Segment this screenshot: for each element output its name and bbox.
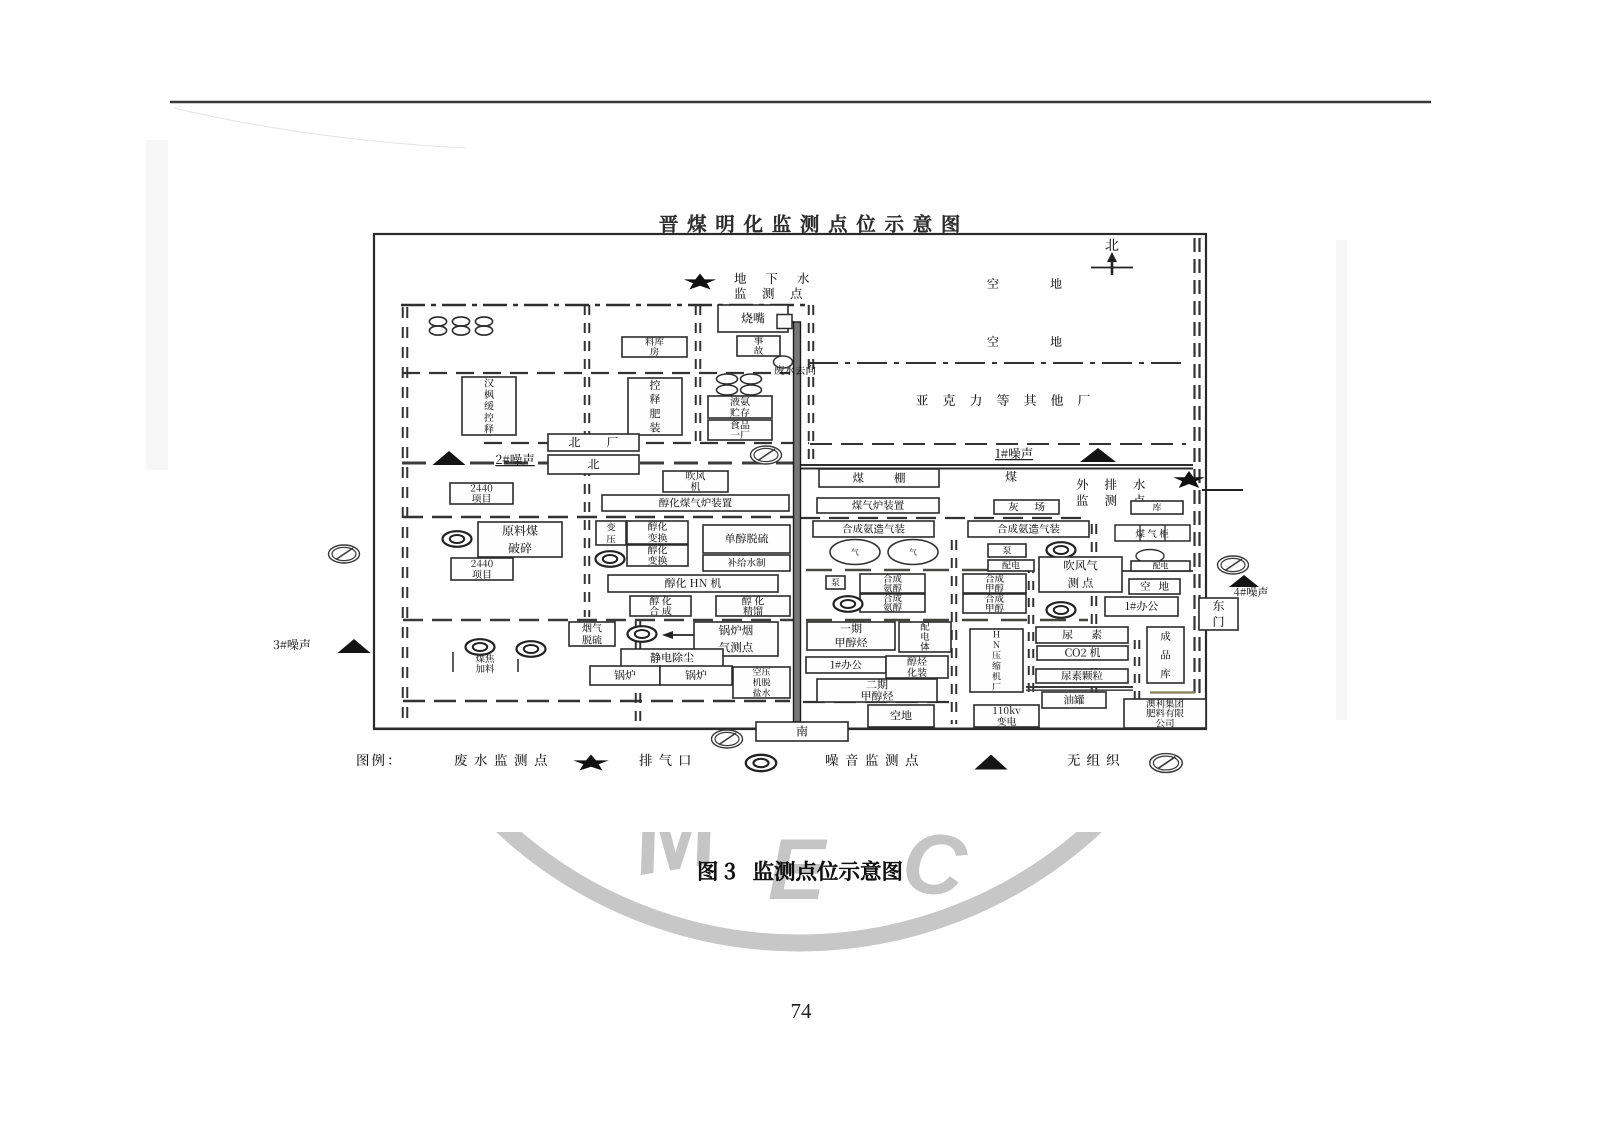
svg-text:气测点: 气测点 [719,639,754,655]
svg-text:释: 释 [484,421,494,436]
svg-text:补给水制: 补给水制 [727,555,766,569]
svg-text:精馏: 精馏 [743,602,763,617]
svg-text:北: 北 [587,456,599,473]
svg-text:泵: 泵 [831,576,840,589]
svg-text:项目: 项目 [472,490,492,505]
svg-text:2#噪声: 2#噪声 [495,450,534,468]
svg-text:氨醇: 氨醇 [883,600,903,614]
svg-text:吹风气: 吹风气 [1063,558,1098,574]
svg-text:油罐: 油罐 [1064,693,1086,708]
svg-text:东: 东 [1212,597,1224,614]
svg-text:脱硫: 脱硫 [582,631,602,646]
svg-text:压: 压 [606,531,616,545]
svg-text:废水监测点: 废水监测点 [454,749,554,769]
svg-text:厂: 厂 [992,680,1001,693]
svg-text:4#噪声: 4#噪声 [1234,584,1269,600]
svg-text:排气口: 排气口 [639,749,698,769]
svg-text:公司: 公司 [1155,715,1174,729]
svg-text:配电: 配电 [1153,561,1169,572]
svg-text:故: 故 [754,343,764,357]
svg-text:无组织: 无组织 [1067,749,1126,769]
svg-text:合成氨造气装: 合成氨造气装 [842,522,905,537]
svg-text:静电除尘: 静电除尘 [650,650,694,666]
svg-text:1#噪声: 1#噪声 [995,444,1033,462]
svg-text:南: 南 [796,723,808,740]
svg-text:房: 房 [650,344,660,358]
svg-text:库: 库 [1160,666,1171,681]
svg-text:空地: 空地 [890,708,912,724]
svg-text:原料煤: 原料煤 [502,522,538,539]
svg-text:锅炉: 锅炉 [685,667,707,683]
svg-text:空: 空 [987,333,999,350]
svg-text:图例：: 图例： [356,749,403,769]
svg-text:晋煤明化监测点位示意图: 晋煤明化监测点位示意图 [659,209,969,237]
svg-text:1#办公: 1#办公 [1125,598,1159,614]
svg-text:醇化 HN 机: 醇化 HN 机 [665,575,722,591]
svg-text:装: 装 [650,420,661,436]
svg-text:噪音监测点: 噪音监测点 [825,749,925,769]
svg-text:机: 机 [691,478,701,493]
svg-text:74: 74 [791,999,813,1023]
svg-text:地: 地 [1050,333,1062,350]
svg-text:煤 气 柜: 煤 气 柜 [1135,526,1169,540]
svg-text:测 点: 测 点 [1068,575,1094,591]
svg-text:库: 库 [1152,501,1161,514]
svg-text:烧嘴: 烧嘴 [741,310,765,327]
svg-text:变电: 变电 [997,713,1017,728]
svg-text:废水去向: 废水去向 [774,363,816,378]
svg-text:一厂: 一厂 [730,426,750,441]
svg-text:3#噪声: 3#噪声 [273,636,311,653]
svg-text:气: 气 [909,547,917,558]
svg-text:1#办公: 1#办公 [830,658,863,673]
svg-text:单醇脱硫: 单醇脱硫 [725,531,769,547]
svg-text:泵: 泵 [1002,544,1011,557]
svg-text:CO2 机: CO2 机 [1064,645,1100,661]
svg-text:破碎: 破碎 [508,539,532,556]
svg-text:监测点: 监测点 [734,284,818,302]
svg-text:空: 空 [987,275,999,292]
svg-text:煤棚: 煤棚 [853,470,936,486]
svg-text:甲醇: 甲醇 [985,601,1005,615]
svg-text:甲醇烃: 甲醇烃 [861,688,894,704]
svg-text:锅炉: 锅炉 [614,667,636,683]
svg-text:化装: 化装 [907,664,927,679]
svg-text:煤: 煤 [1005,468,1017,485]
svg-text:图 3 监测点位示意图: 图 3 监测点位示意图 [697,855,903,886]
svg-text:灰场: 灰场 [1008,500,1061,515]
svg-text:尿素: 尿素 [1062,627,1120,643]
svg-text:亚克力等其他厂: 亚克力等其他厂 [915,390,1104,409]
svg-text:尿素颗粒: 尿素颗粒 [1061,669,1103,684]
svg-text:气: 气 [851,547,859,558]
svg-text:品: 品 [1160,648,1171,663]
svg-text:体: 体 [920,639,930,653]
svg-text:北厂: 北厂 [568,434,644,451]
svg-text:醇化煤气炉装置: 醇化煤气炉装置 [659,496,733,511]
svg-text:门: 门 [1212,613,1224,630]
svg-text:地: 地 [1050,275,1062,292]
svg-text:加料: 加料 [475,661,495,675]
svg-text:项目: 项目 [472,566,492,581]
svg-text:合成氨造气装: 合成氨造气装 [997,522,1060,537]
svg-text:配电: 配电 [1002,559,1020,572]
svg-text:合 成: 合 成 [649,602,672,617]
svg-text:空地: 空地 [1140,579,1177,594]
svg-text:盐水: 盐水 [752,686,770,699]
svg-text:煤气炉装置: 煤气炉装置 [852,498,905,513]
svg-text:锅炉烟: 锅炉烟 [719,622,754,638]
svg-text:甲醇烃: 甲醇烃 [835,635,868,651]
svg-text:成: 成 [1160,629,1171,644]
svg-text:变换: 变换 [648,552,668,567]
